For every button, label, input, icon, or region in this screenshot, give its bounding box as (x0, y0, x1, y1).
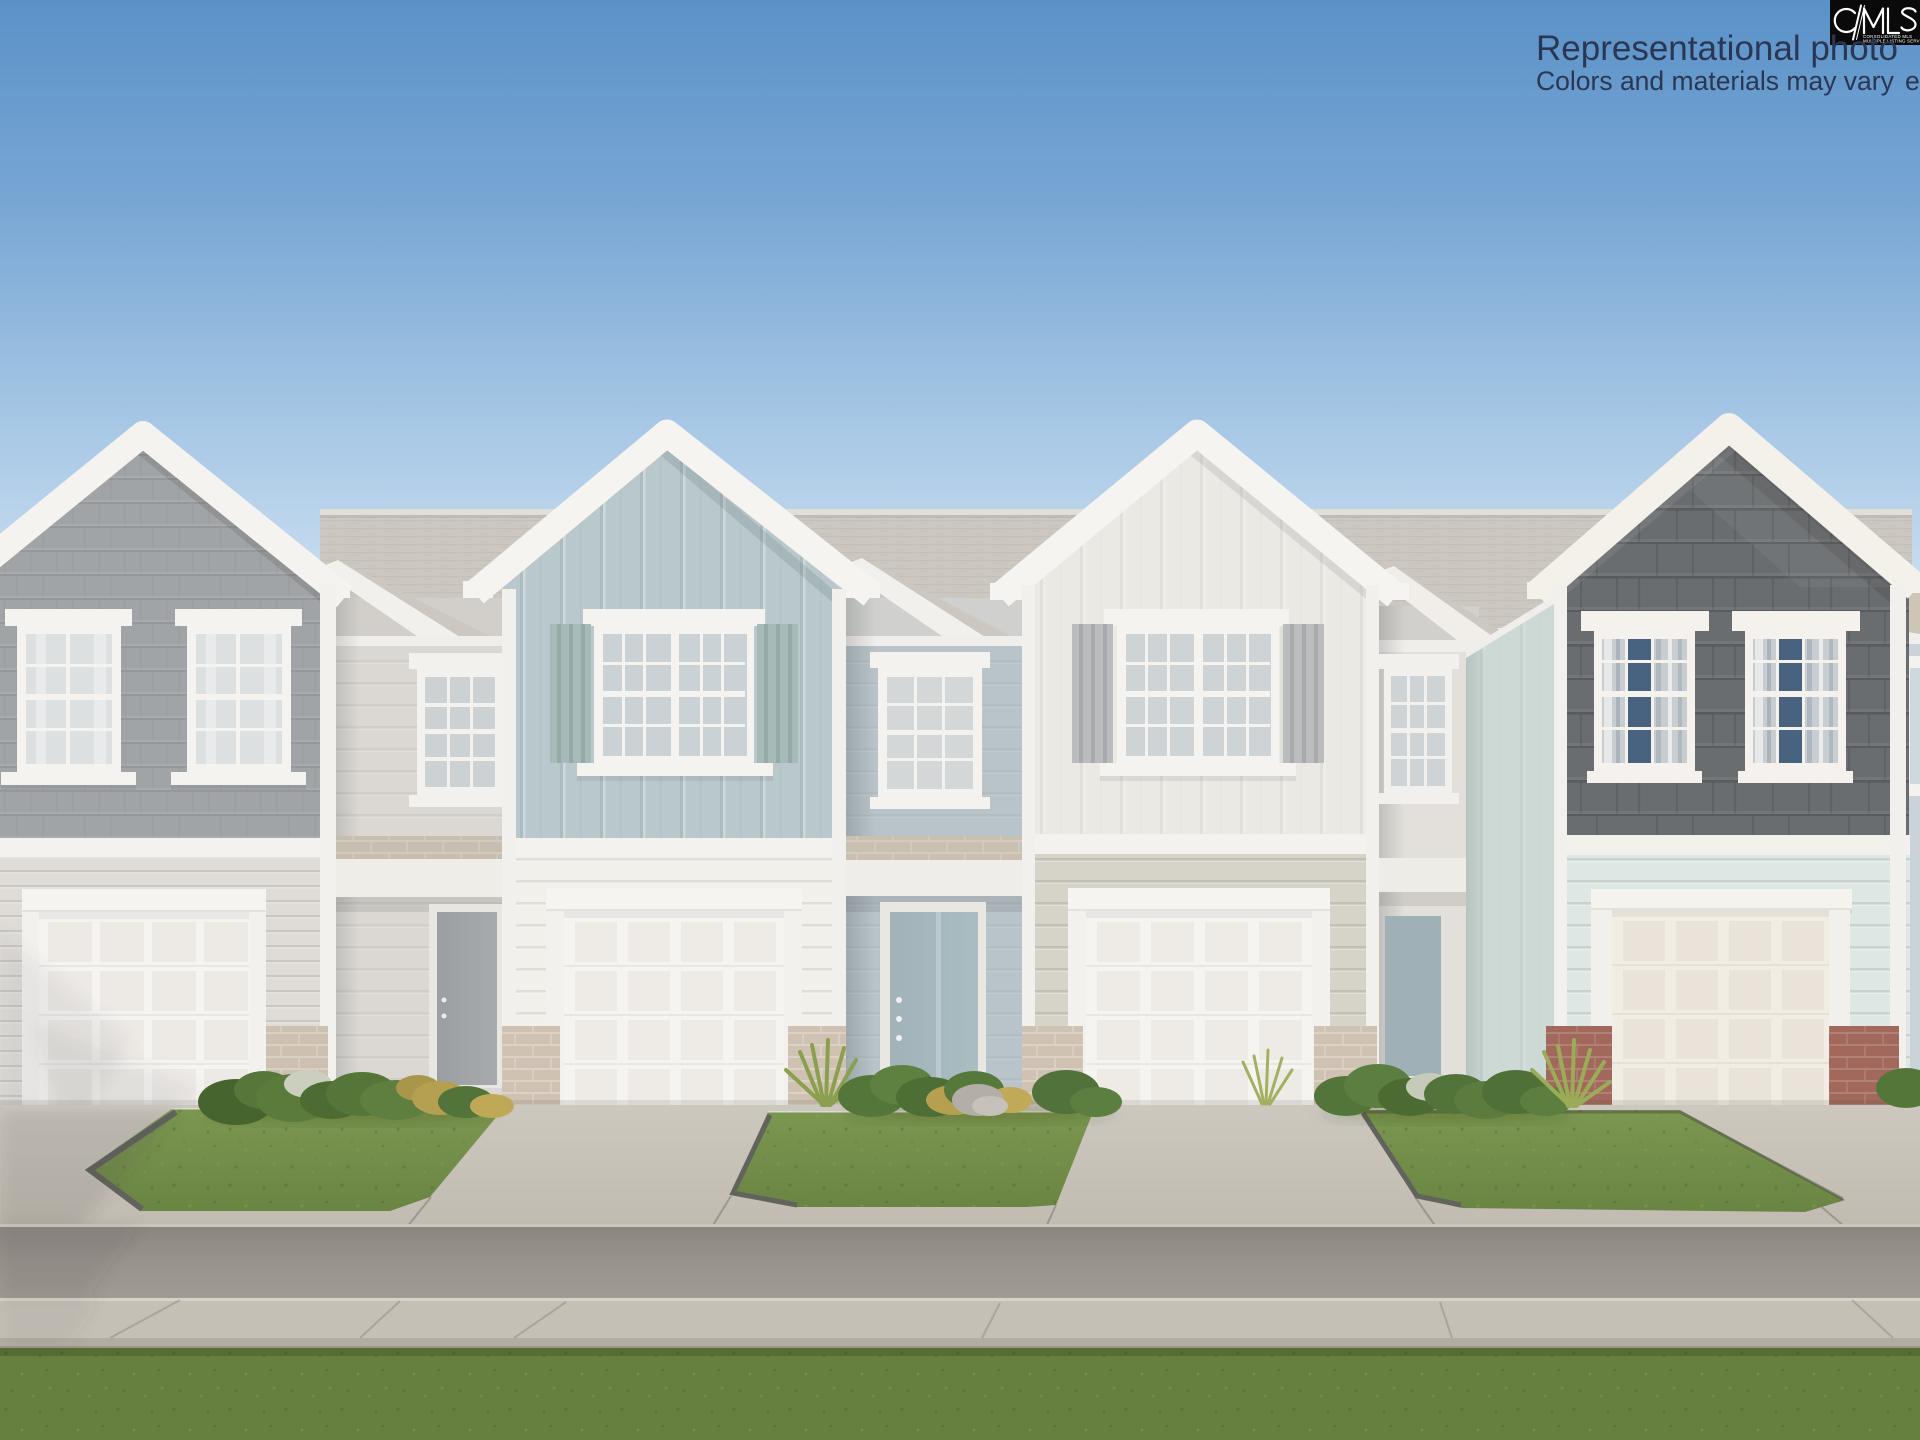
svg-text:Representational photo: Representational photo (1536, 29, 1898, 68)
svg-text:Colors and materials may vary: Colors and materials may vary (1536, 66, 1895, 96)
svg-text:e: e (1905, 66, 1920, 96)
